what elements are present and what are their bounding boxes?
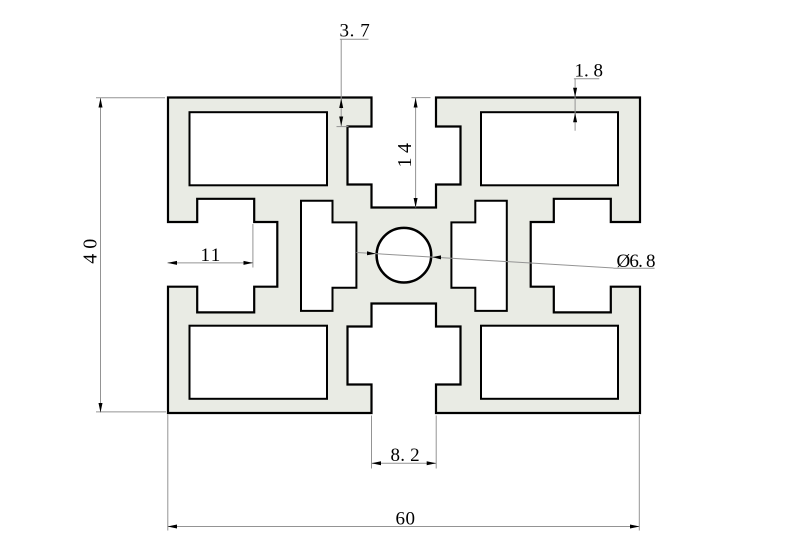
svg-text:1. 8: 1. 8 [575,60,604,81]
svg-text:8. 2: 8. 2 [391,445,420,466]
svg-text:60: 60 [396,508,416,529]
svg-text:40: 40 [80,234,102,264]
svg-text:11: 11 [201,245,222,266]
svg-text:3. 7: 3. 7 [340,21,371,42]
svg-text:Ø6. 8: Ø6. 8 [617,251,656,272]
svg-text:14: 14 [394,139,416,168]
